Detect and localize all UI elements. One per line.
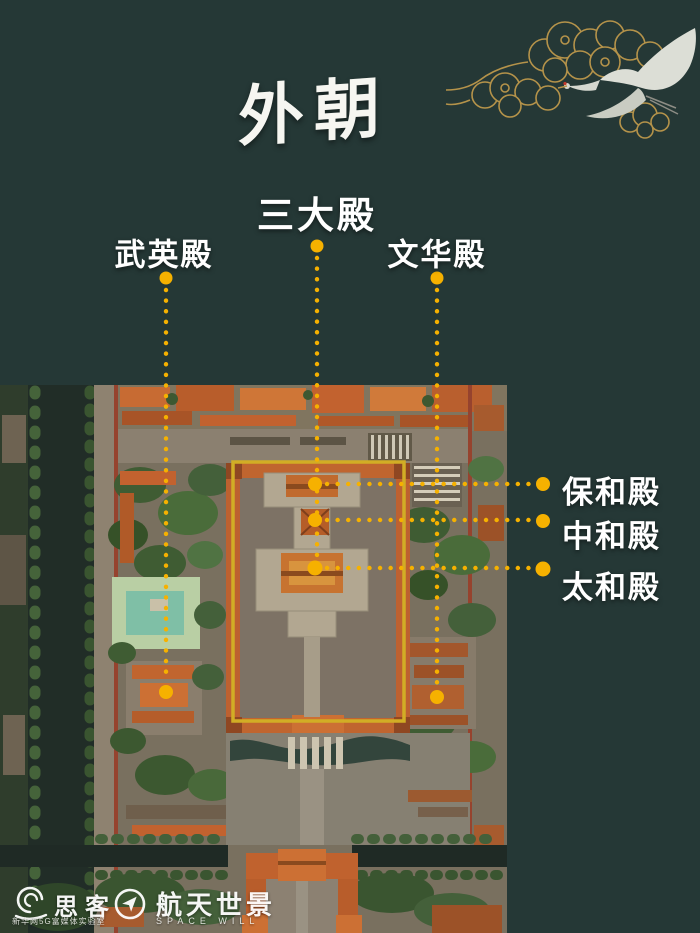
dot-taihedian-label [536,562,551,577]
label-zhonghedian: 中和殿 [562,511,661,556]
dot-baohedian-label [536,477,550,491]
footer-logos: 思客 航天世景 新华网5G富媒体实验室 SPACE WILL [10,883,310,931]
label-taihedian: 太和殿 [562,562,661,607]
dot-sandadian-label [311,240,324,253]
spacewill-subtitle: SPACE WILL [156,916,259,926]
label-baohedian: 保和殿 [562,467,661,512]
label-wenhuadian: 文华殿 [388,230,487,275]
sike-subtitle: 新华网5G富媒体实验室 [12,916,106,927]
spacewill-satellite-icon [112,886,148,922]
label-sandadian: 三大殿 [257,185,377,239]
page-title: 外朝 [238,54,390,161]
infographic-canvas: 外朝 [0,0,700,933]
satellite-map [0,385,507,933]
cloud-crane-decoration [440,0,700,150]
satellite-image [0,385,507,933]
dot-zhonghedian-label [536,514,550,528]
label-wuyingdian: 武英殿 [115,230,214,275]
